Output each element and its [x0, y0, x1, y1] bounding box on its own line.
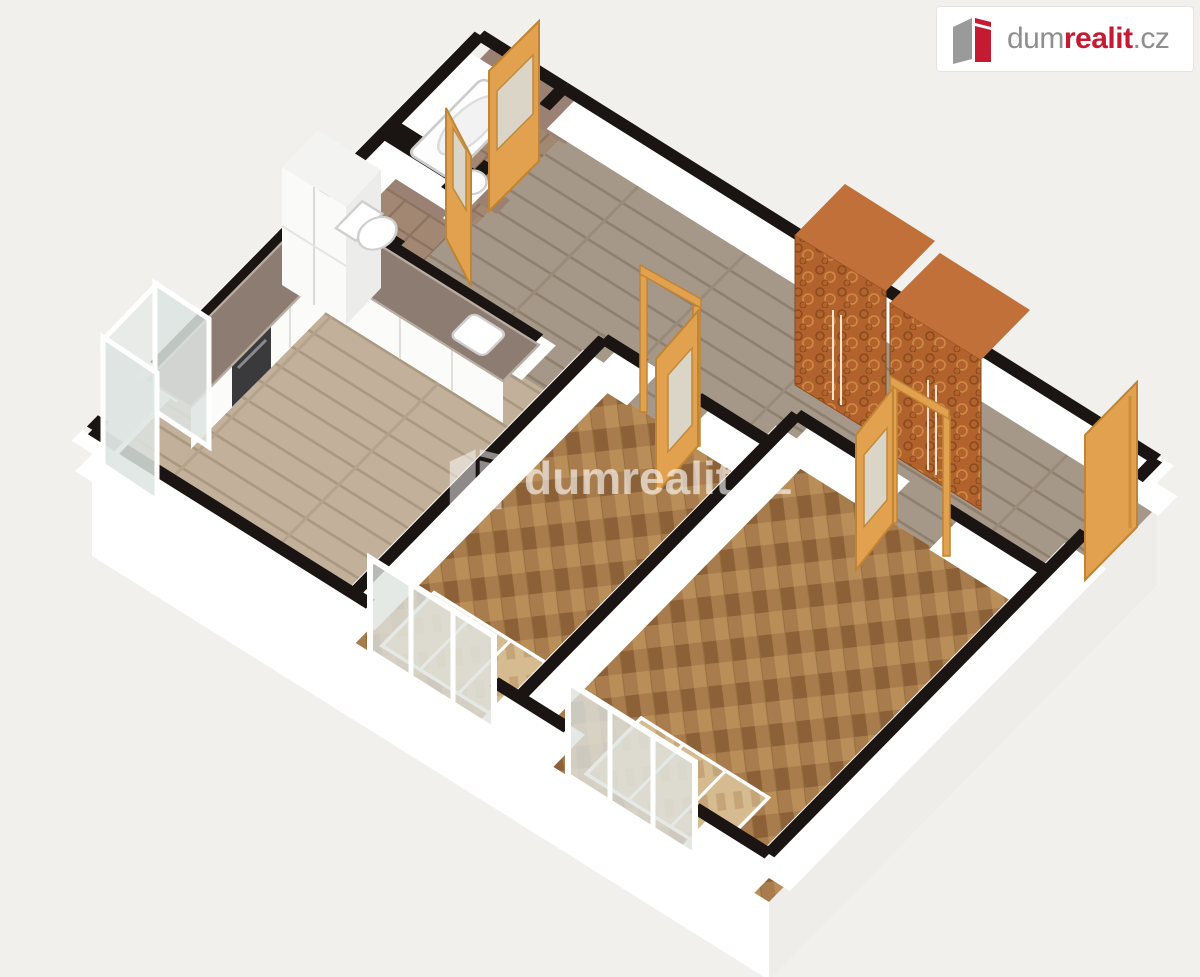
dumrealit-logo: dumrealit.cz [936, 6, 1194, 72]
logo-text-accent: realit [1064, 22, 1133, 55]
dumrealit-logo-icon [951, 14, 995, 64]
floorplan-svg [0, 0, 1200, 977]
floorplan-image: dumrealit.cz dumrealit.cz [0, 0, 1200, 977]
logo-text-prefix: dum [1007, 22, 1064, 55]
logo-text-suffix: .cz [1133, 22, 1170, 55]
dumrealit-logo-text: dumrealit.cz [1007, 22, 1169, 56]
